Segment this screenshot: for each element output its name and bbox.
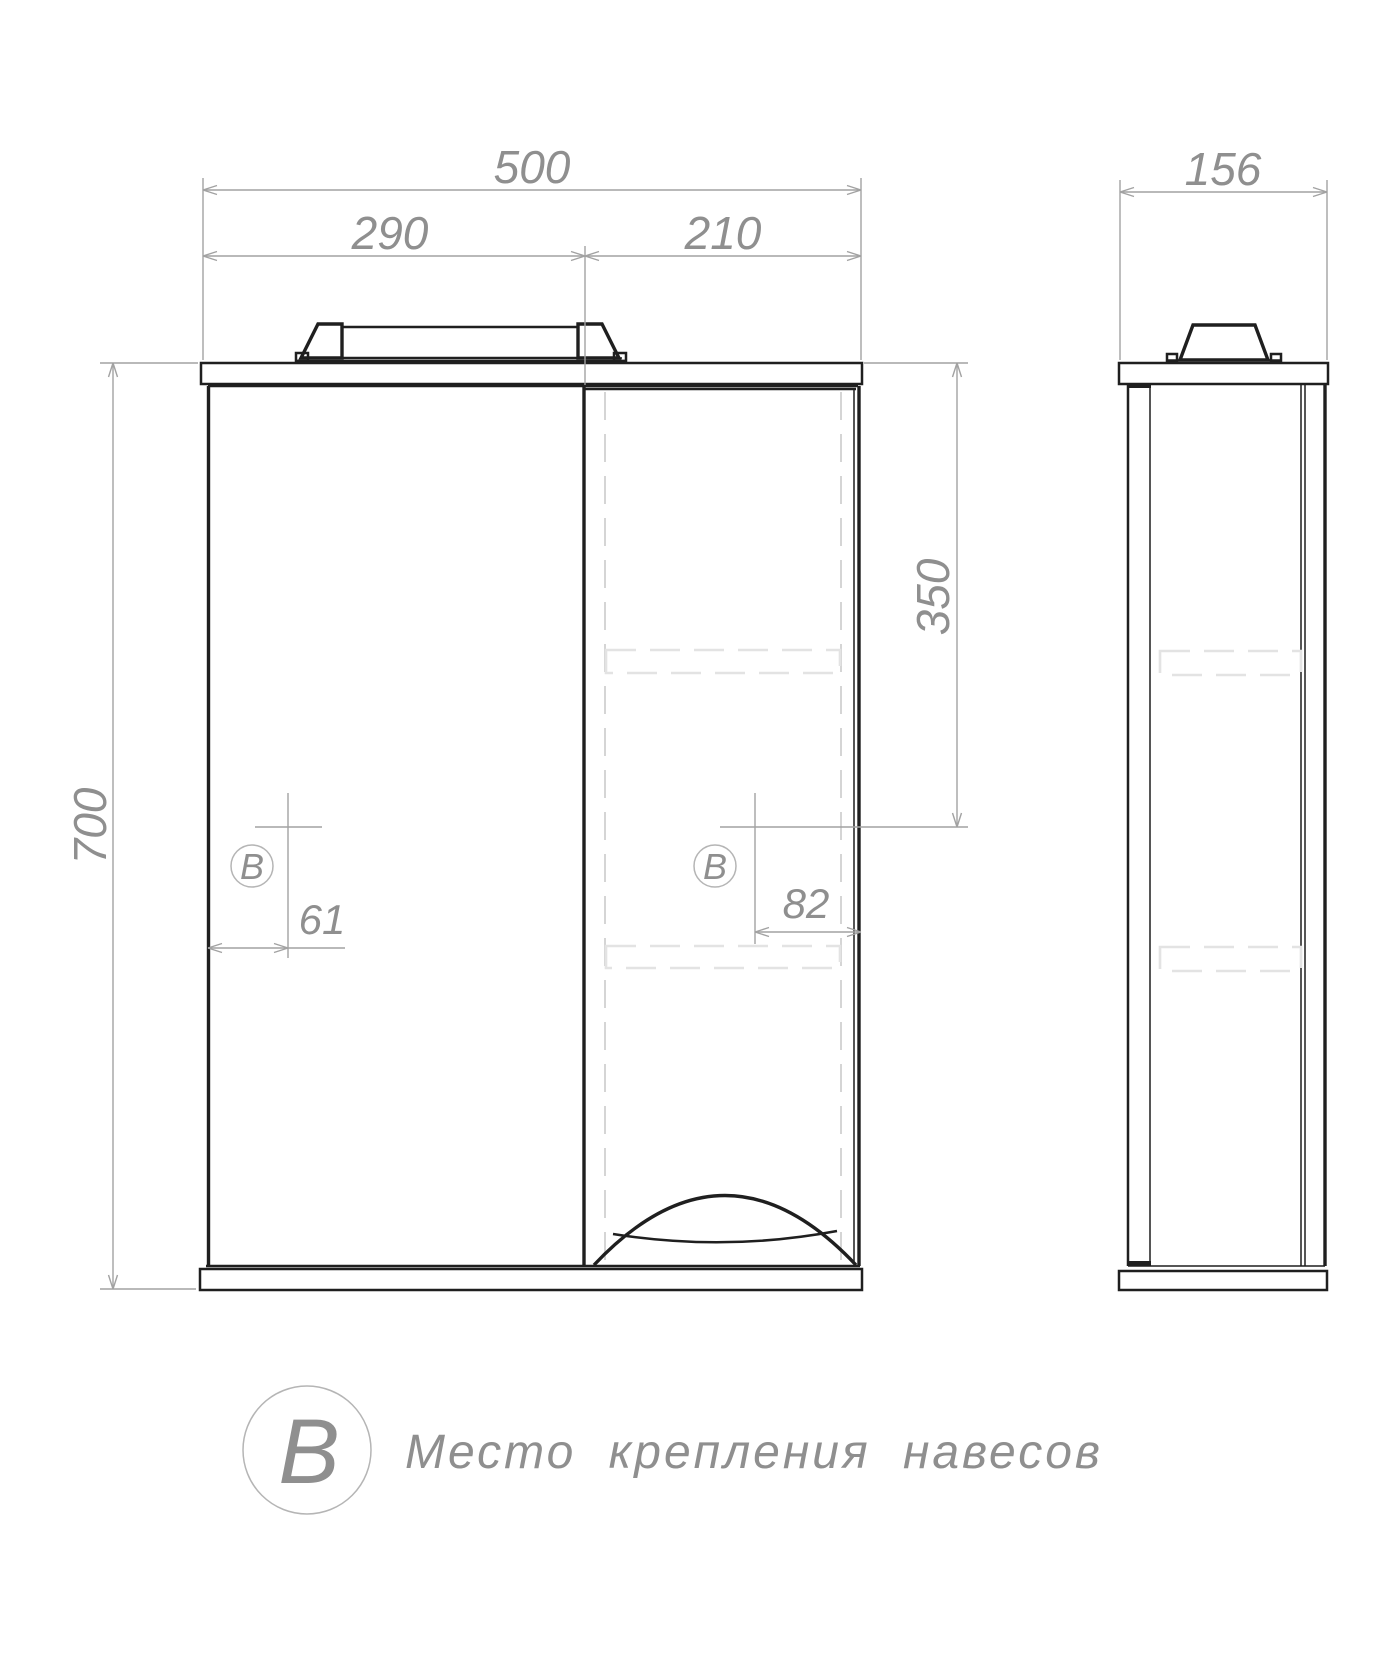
technical-drawing-page: 500 290 210 156 700 350 [0,0,1400,1660]
legend: B Место крепления навесов [243,1386,1103,1514]
dim-label-290: 290 [351,207,429,259]
dim-label-700: 700 [64,787,116,864]
bottom-board-side [1119,1271,1327,1290]
legend-text: Место крепления навесов [405,1426,1103,1479]
drawing-canvas: 500 290 210 156 700 350 [0,0,1400,1660]
dim-depth: 156 [1120,143,1327,360]
top-board-front [201,363,862,384]
dim-label-210: 210 [684,207,762,259]
dim-label-82: 82 [783,880,830,927]
legend-marker-symbol: B [278,1401,339,1503]
dim-label-61: 61 [299,896,346,943]
dim-label-500: 500 [494,141,571,193]
hidden-shelf-lower-side [1160,947,1301,971]
mount-marker-right-label: B [703,846,727,887]
bottom-board-front [200,1269,862,1290]
hidden-shelf-lower [606,946,840,968]
hidden-shelf-upper [606,650,840,673]
mount-point-left: 61 B [208,793,345,958]
curved-shelf-front-edge [594,1196,856,1266]
cabinet-body-side [1128,383,1325,1266]
mount-marker-left-label: B [240,846,264,887]
side-view [1119,325,1328,1290]
front-view [200,324,862,1290]
top-board-side [1119,363,1328,384]
lamp-front [296,324,626,361]
hidden-shelf-upper-side [1160,651,1301,675]
curved-shelf-back-edge [613,1231,837,1242]
mount-point-right: 82 B [694,793,968,944]
lamp-side [1167,325,1281,361]
dim-label-156: 156 [1185,143,1262,195]
cabinet-body-front [206,386,860,1266]
dim-height: 700 [64,363,198,1289]
dim-label-350: 350 [907,558,959,635]
dim-mount-top: 350 [864,363,968,827]
